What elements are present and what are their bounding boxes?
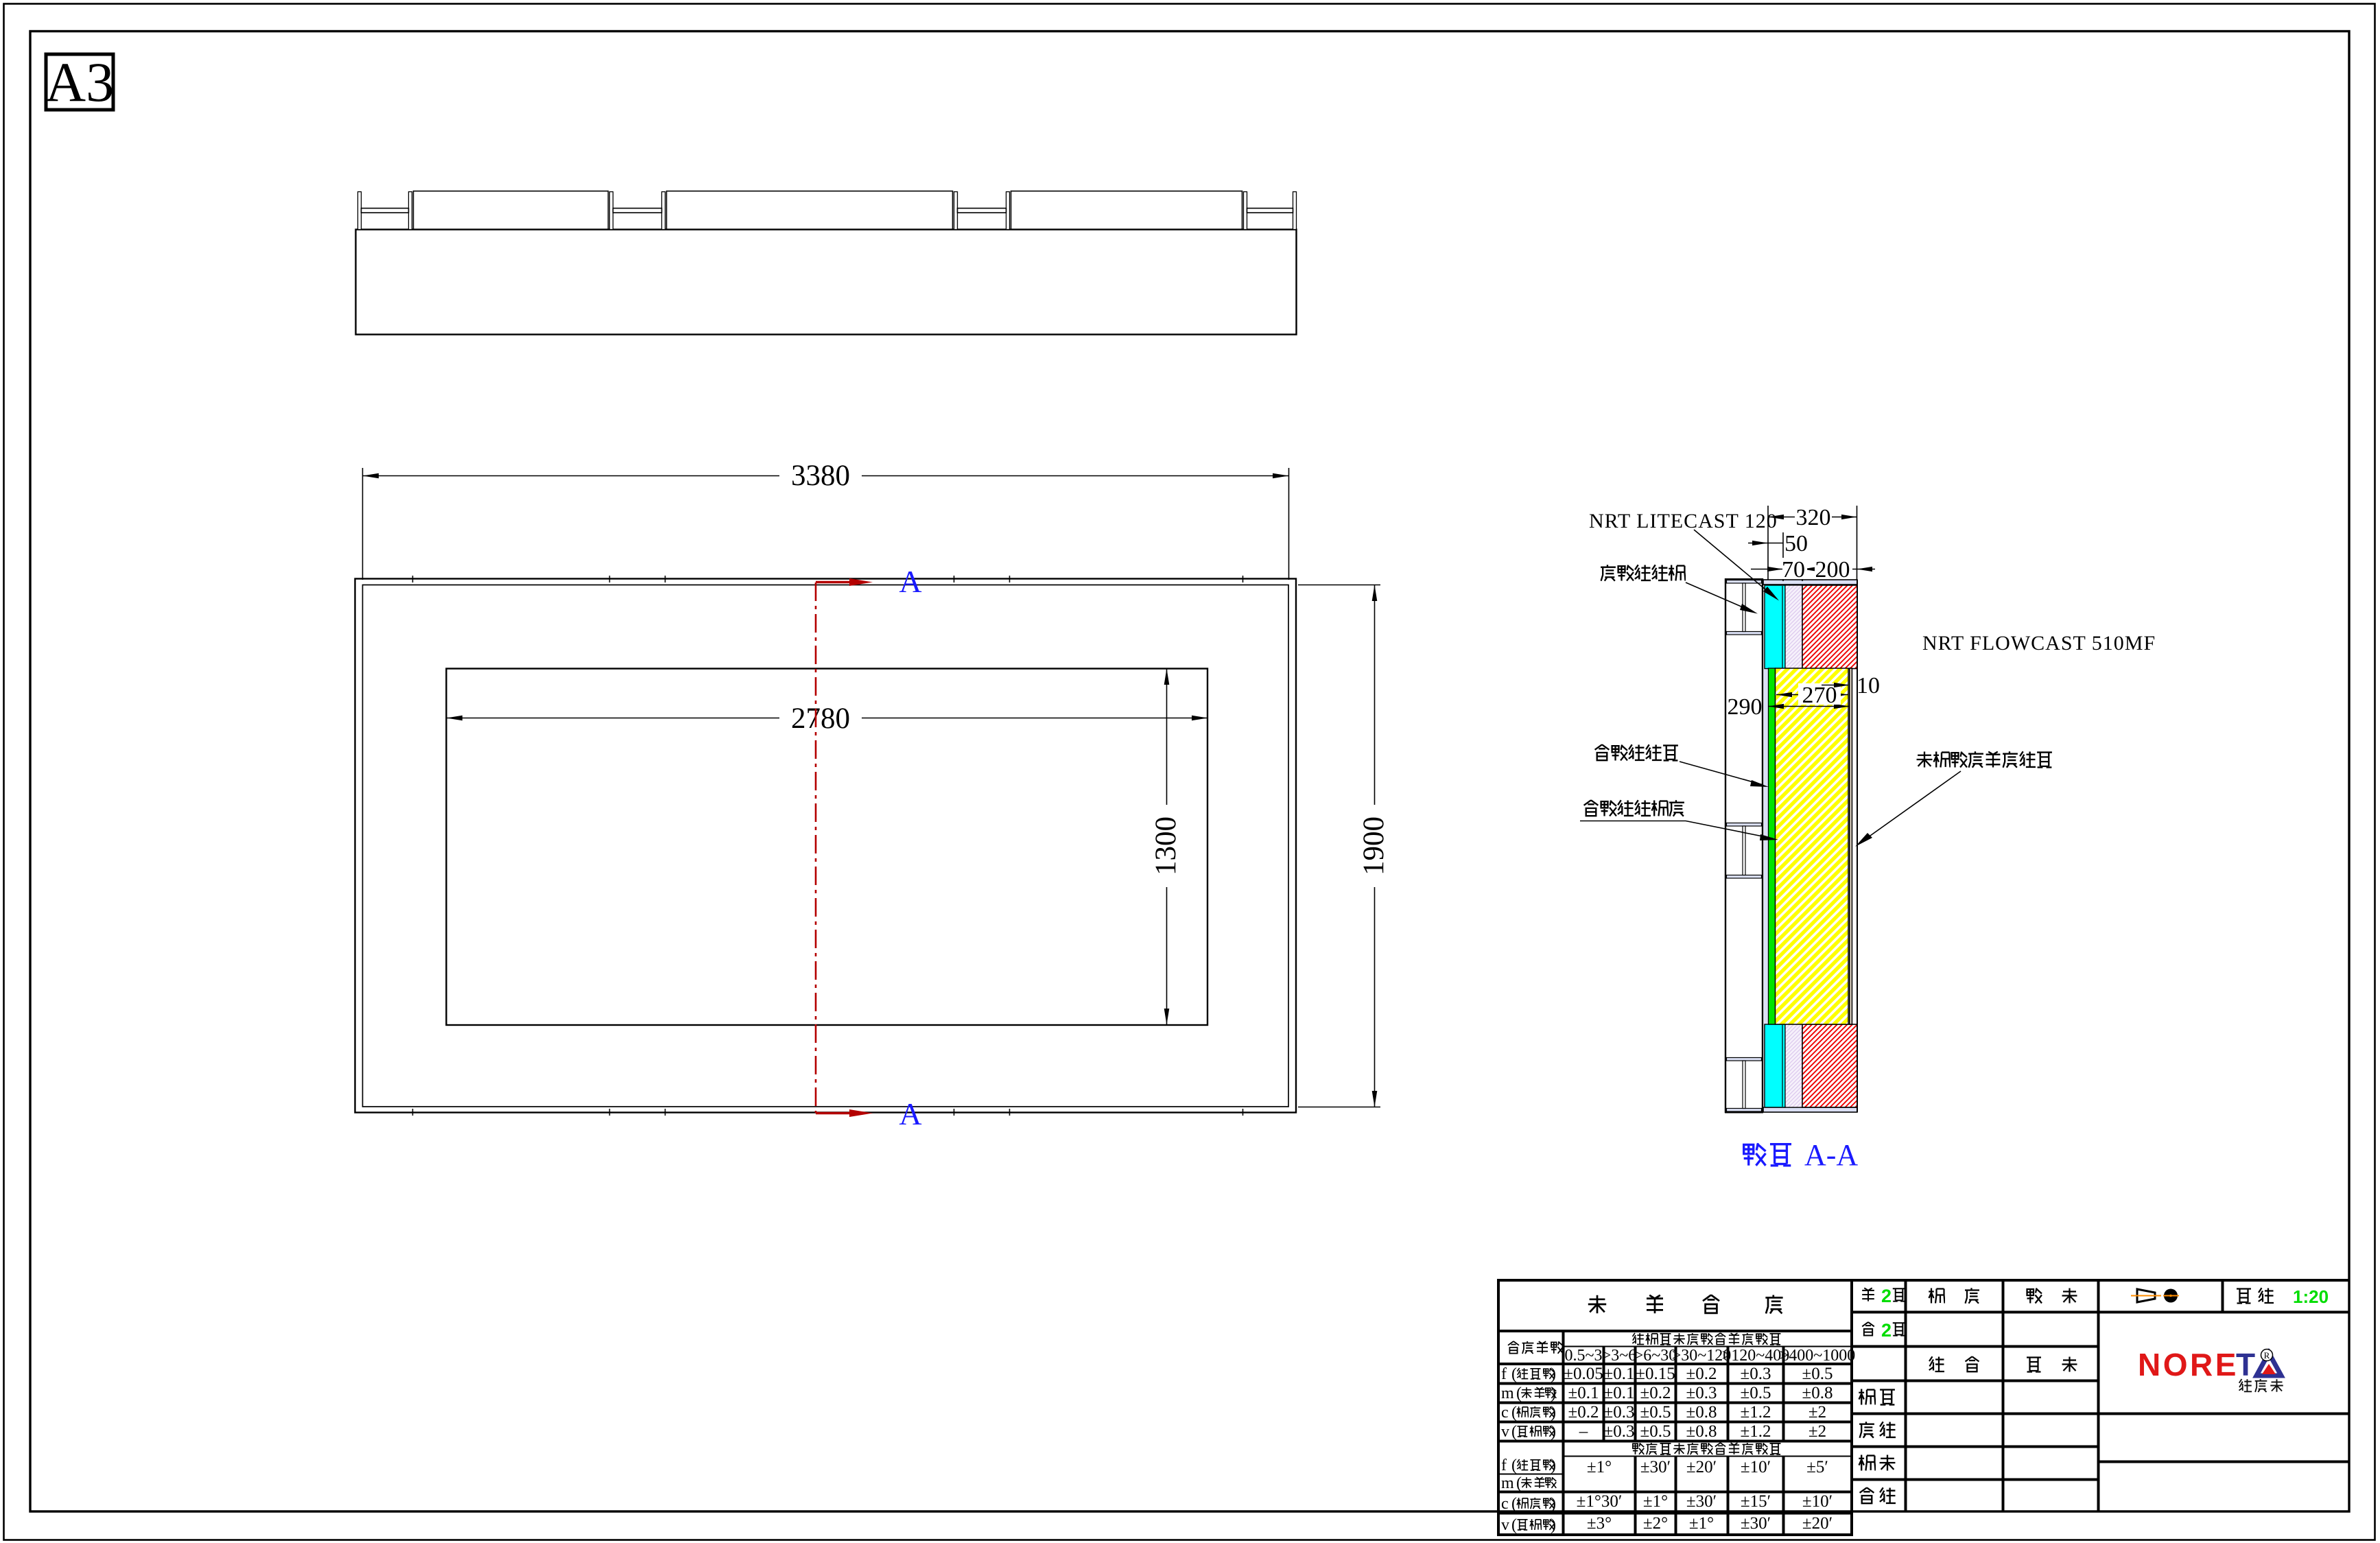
svg-text:±2°: ±2° [1643,1514,1668,1533]
svg-text:2: 2 [1881,1320,1892,1341]
svg-text:±30′: ±30′ [1640,1458,1671,1476]
svg-text:±20′: ±20′ [1802,1514,1833,1533]
svg-text:10: 10 [1857,673,1880,698]
svg-text:(: ( [1511,1404,1517,1422]
svg-text:±0.2: ±0.2 [1640,1384,1671,1402]
svg-text:>6~30: >6~30 [1634,1347,1677,1365]
svg-text:(: ( [1516,1385,1522,1402]
svg-text:±0.3: ±0.3 [1604,1403,1635,1422]
svg-text:±1°: ±1° [1643,1492,1668,1511]
svg-text:±1.2: ±1.2 [1741,1403,1771,1422]
svg-text:±0.1: ±0.1 [1604,1384,1635,1402]
svg-text:–: – [1579,1422,1588,1441]
svg-text:R: R [2264,1350,2270,1361]
svg-text:3380: 3380 [791,460,850,492]
svg-text:50: 50 [1784,531,1808,556]
svg-text:±0.15: ±0.15 [1636,1365,1675,1383]
svg-text:±2: ±2 [1808,1422,1826,1441]
svg-text:2: 2 [1881,1286,1892,1306]
svg-text:A: A [899,1096,921,1131]
svg-text:±0.3: ±0.3 [1741,1365,1771,1383]
svg-text:(: ( [1511,1457,1517,1474]
svg-text:2780: 2780 [791,703,850,735]
svg-text:±0.05: ±0.05 [1564,1365,1603,1383]
svg-text:1:20: 1:20 [2293,1286,2329,1307]
svg-text:f: f [1501,1365,1507,1383]
svg-text:v: v [1501,1516,1509,1534]
svg-text:(: ( [1516,1474,1522,1492]
svg-text:±3°: ±3° [1587,1514,1612,1533]
svg-text:(: ( [1511,1423,1517,1441]
svg-text:±0.1: ±0.1 [1604,1365,1635,1383]
svg-text:±0.2: ±0.2 [1568,1403,1599,1422]
svg-text:±30′: ±30′ [1686,1492,1717,1511]
svg-text:±0.3: ±0.3 [1686,1384,1717,1402]
svg-text:>3~6: >3~6 [1602,1347,1637,1365]
svg-text:A: A [899,564,921,599]
svg-text:±0.5: ±0.5 [1741,1384,1771,1402]
svg-text:1900: 1900 [1358,816,1390,875]
svg-text:(: ( [1511,1495,1517,1513]
svg-text:±15′: ±15′ [1741,1492,1771,1511]
svg-text:c: c [1501,1404,1509,1422]
svg-text:>400~1000: >400~1000 [1780,1347,1856,1365]
svg-text:70: 70 [1782,557,1805,582]
svg-text:v: v [1501,1423,1509,1441]
svg-text:±1°: ±1° [1689,1514,1714,1533]
svg-text:±20′: ±20′ [1686,1458,1717,1476]
svg-text:NRT LITECAST 120: NRT LITECAST 120 [1589,510,1778,532]
svg-text:±1°30′: ±1°30′ [1577,1492,1623,1511]
svg-text:A3: A3 [45,51,114,113]
svg-text:±0.3: ±0.3 [1604,1422,1635,1441]
svg-text:±0.8: ±0.8 [1686,1422,1717,1441]
svg-text:A-A: A-A [1804,1138,1858,1172]
svg-text:T: T [2236,1347,2255,1382]
svg-text:±0.1: ±0.1 [1568,1384,1599,1402]
svg-text:±10′: ±10′ [1802,1492,1833,1511]
svg-text:±30′: ±30′ [1741,1514,1771,1533]
svg-text:±1.2: ±1.2 [1741,1422,1771,1441]
svg-text:200: 200 [1815,557,1850,582]
svg-text:f: f [1501,1457,1507,1474]
svg-text:±5′: ±5′ [1806,1458,1828,1476]
svg-text:290: 290 [1728,694,1763,720]
svg-text:±0.2: ±0.2 [1686,1365,1717,1383]
svg-text:(: ( [1511,1365,1517,1383]
svg-text:±1°: ±1° [1587,1458,1612,1476]
svg-text:±2: ±2 [1808,1403,1826,1422]
svg-text:NORE: NORE [2138,1347,2239,1382]
svg-text:±10′: ±10′ [1741,1458,1771,1476]
svg-text:c: c [1501,1495,1509,1513]
svg-text:m: m [1501,1474,1514,1492]
svg-text:±0.5: ±0.5 [1802,1365,1833,1383]
svg-text:±0.8: ±0.8 [1686,1403,1717,1422]
svg-text:(: ( [1511,1516,1517,1534]
svg-text:0.5~3: 0.5~3 [1565,1347,1603,1365]
svg-text:320: 320 [1796,505,1831,530]
svg-text:NRT FLOWCAST 510MF: NRT FLOWCAST 510MF [1922,632,2156,655]
svg-text:±0.5: ±0.5 [1640,1422,1671,1441]
svg-text:±0.8: ±0.8 [1802,1384,1833,1402]
svg-text:±0.5: ±0.5 [1640,1403,1671,1422]
svg-text:1300: 1300 [1150,816,1182,875]
svg-text:m: m [1501,1385,1514,1402]
svg-text:270: 270 [1802,683,1837,708]
